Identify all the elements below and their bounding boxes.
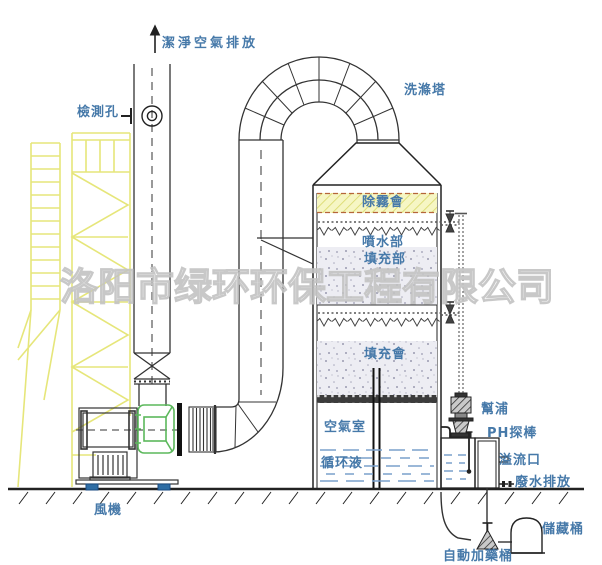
company-watermark: 洛阳市绿环环保工程有限公司 [60, 256, 554, 311]
storage-tank-shape [508, 518, 545, 553]
label-wastewater-discharge: 廢水排放 [515, 476, 571, 489]
exhaust-stack [134, 64, 170, 406]
label-ph-probe: PH探棒 [487, 427, 537, 440]
wastewater-outlet [499, 481, 514, 487]
label-packing-layer: 填充會 [364, 348, 406, 361]
label-inspection-hole: 檢測孔 [77, 106, 119, 119]
label-demister-layer: 除霧會 [362, 196, 404, 209]
label-packing-section: 填充部 [364, 253, 406, 266]
ground [8, 489, 584, 504]
spray-header-1 [317, 222, 461, 235]
diagram-stage: 潔淨空氣排放 檢測孔 洗滌塔 除霧會 噴水部 填充部 填充會 空氣室 循环液 幫… [0, 0, 602, 565]
label-auto-dosing-tank: 自動加藥桶 [443, 550, 513, 563]
pump-unit [449, 393, 473, 437]
label-scrubber-tower: 洗滌塔 [404, 84, 446, 97]
flexible-connector [189, 405, 216, 454]
label-pump: 幫浦 [481, 403, 509, 416]
label-overflow-port: 溢流口 [499, 454, 541, 467]
label-fan: 風機 [94, 504, 122, 517]
upper-elbow-duct [239, 57, 399, 143]
label-circulating-liquid: 循环液 [321, 457, 363, 470]
fan-discharge-flange [177, 403, 182, 456]
exhaust-arrow-icon [151, 26, 160, 54]
label-storage-tank: 儲藏桶 [542, 523, 584, 536]
label-spray-section: 噴水部 [362, 236, 404, 249]
inspection-hole [121, 106, 162, 126]
support-grate [317, 395, 437, 403]
label-air-chamber: 空氣室 [324, 421, 366, 434]
dosing-pump [477, 523, 498, 549]
dosing-piping [441, 488, 512, 542]
valve-upper-icon [446, 211, 454, 232]
label-clean-air-exhaust: 潔淨空氣排放 [162, 37, 258, 50]
fan-unit [76, 408, 178, 484]
fan-inlet-green [135, 405, 174, 453]
